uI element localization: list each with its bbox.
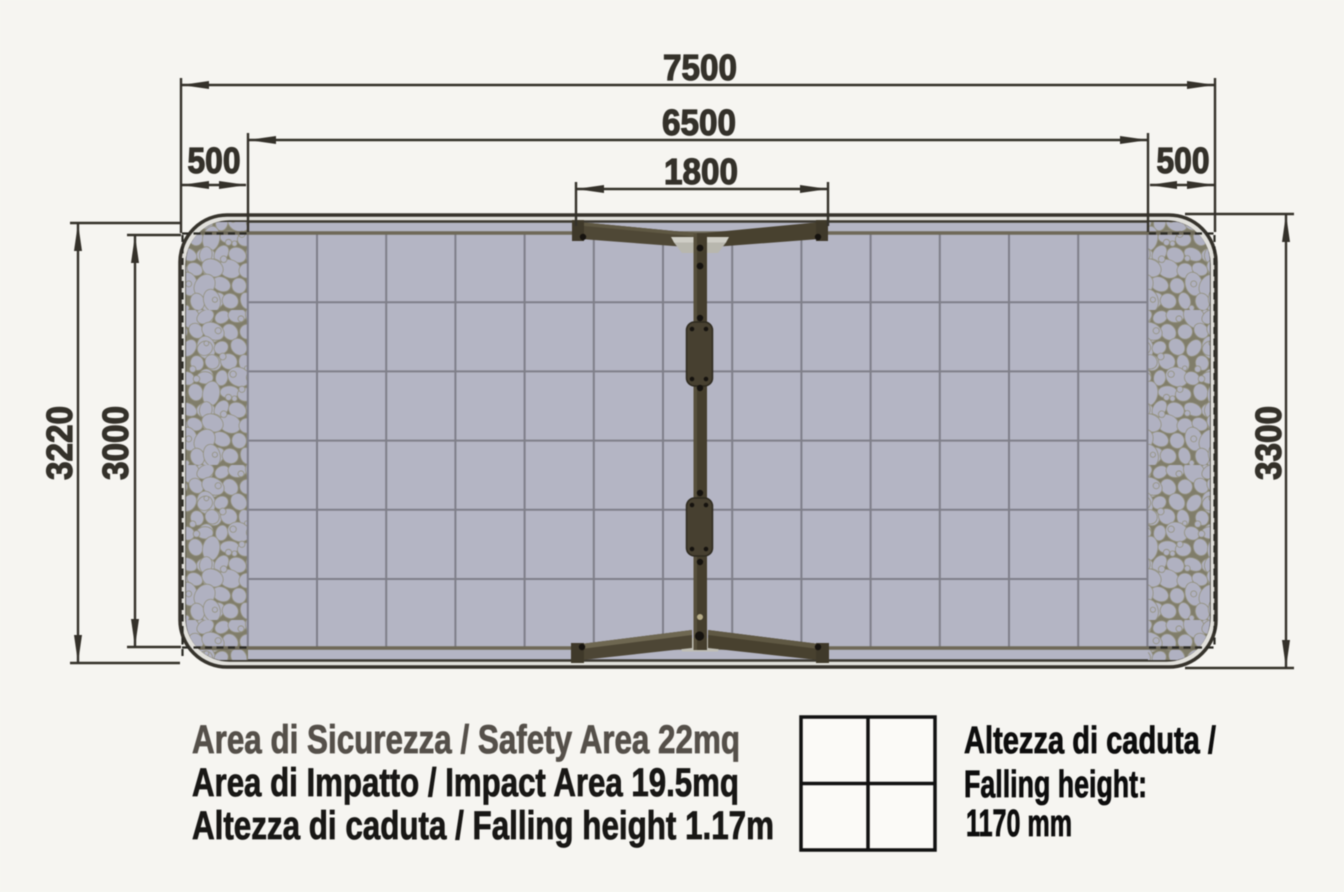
svg-text:3000: 3000 <box>95 406 136 480</box>
svg-text:500: 500 <box>188 140 241 181</box>
svg-text:Altezza di caduta / Falling he: Altezza di caduta / Falling height 1.17m <box>192 804 774 848</box>
svg-text:3220: 3220 <box>39 406 80 480</box>
svg-text:6500: 6500 <box>662 102 736 143</box>
svg-text:500: 500 <box>1157 140 1210 181</box>
svg-text:1170 mm: 1170 mm <box>966 803 1072 845</box>
svg-text:Area di Sicurezza / Safety Are: Area di Sicurezza / Safety Area 22mq <box>192 718 740 762</box>
svg-text:Falling height:: Falling height: <box>964 764 1147 806</box>
svg-text:1800: 1800 <box>664 151 738 192</box>
svg-text:3300: 3300 <box>1248 406 1289 480</box>
svg-text:Altezza di caduta /: Altezza di caduta / <box>964 720 1216 762</box>
svg-text:Area di Impatto / Impact Area: Area di Impatto / Impact Area 19.5mq <box>192 761 739 805</box>
svg-text:7500: 7500 <box>663 47 737 88</box>
